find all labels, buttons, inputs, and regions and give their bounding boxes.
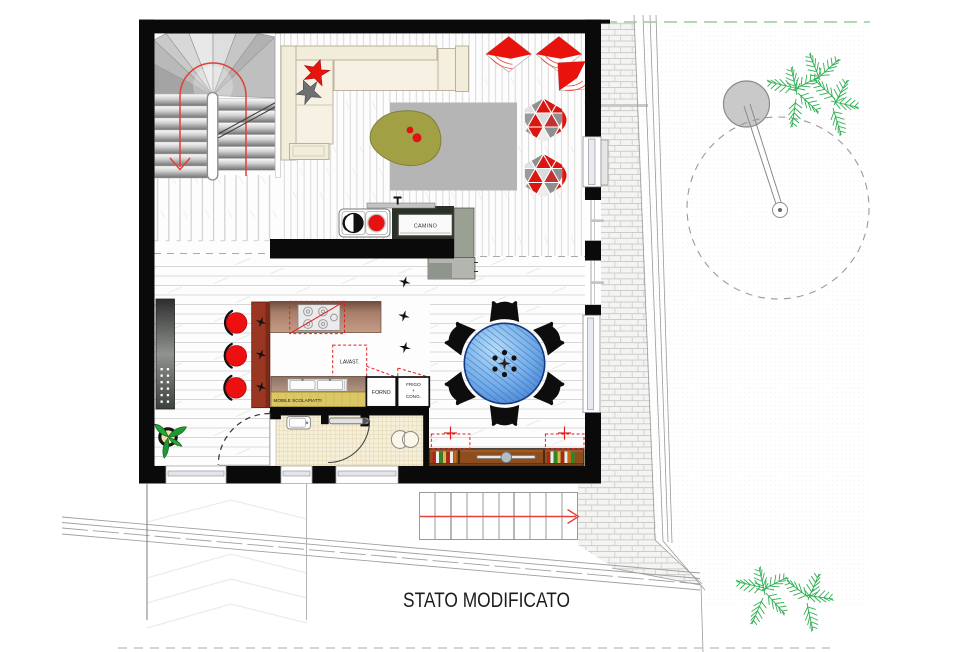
svg-text:CAMINO: CAMINO: [414, 224, 437, 230]
svg-text:FORNO: FORNO: [372, 390, 391, 396]
svg-text:STATO MODIFICATO: STATO MODIFICATO: [403, 588, 570, 612]
svg-text:+: +: [412, 388, 415, 393]
svg-text:FRIGO: FRIGO: [406, 382, 421, 387]
svg-text:MOBILE SCOLAPIATTI: MOBILE SCOLAPIATTI: [274, 398, 322, 403]
svg-text:LAVAST.: LAVAST.: [340, 360, 359, 366]
svg-text:CONG.: CONG.: [406, 394, 421, 399]
